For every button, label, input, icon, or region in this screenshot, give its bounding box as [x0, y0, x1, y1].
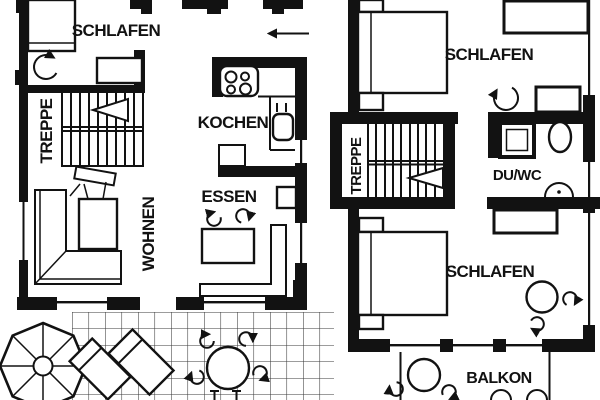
toilet-icon [549, 122, 571, 152]
room-label-schlafen-bottom: SCHLAFEN [446, 262, 535, 281]
door-swing-arrow-icon [492, 87, 520, 113]
chair-arrow-icon [388, 381, 406, 399]
bedside-table [359, 0, 383, 12]
room-label-treppe-gf: TREPPE [37, 98, 56, 163]
tv-board [74, 167, 115, 186]
stove-icon [220, 66, 258, 96]
chair-arrow-icon [531, 316, 546, 332]
room-label-balkon: BALKON [466, 370, 531, 387]
wardrobe [504, 1, 588, 33]
bedside-table [359, 315, 383, 329]
room-label-treppe-og: TREPPE [348, 137, 365, 195]
kitchen-cabinet [219, 145, 245, 166]
clipped-chairs [491, 390, 547, 400]
coffee-table [79, 199, 117, 249]
wardrobe [97, 58, 142, 83]
chair-arrow-icon [205, 211, 223, 228]
room-label-schlafen-gf: SCHLAFEN [72, 21, 161, 40]
chair-arrow-icon [441, 383, 458, 399]
room-label-du-wc: DU/WC [493, 167, 542, 184]
bathroom-du-wc [500, 122, 573, 197]
window [390, 344, 440, 346]
shower-icon [500, 123, 534, 157]
washbasin-icon [545, 183, 573, 197]
window [506, 344, 542, 346]
chair-arrow-icon [562, 291, 578, 306]
door-swing-arrow-icon [31, 53, 57, 81]
room-label-schlafen-top: SCHLAFEN [445, 45, 534, 64]
chair-arrow-icon [234, 207, 252, 224]
bedside-table [359, 218, 383, 232]
tv-stand-legs [70, 182, 106, 199]
window [453, 344, 493, 346]
window [588, 162, 590, 198]
sink-taps [277, 103, 286, 112]
room-label-essen: ESSEN [201, 187, 256, 206]
bedroom-gf [28, 0, 142, 83]
window [300, 223, 302, 263]
dining-table [202, 229, 254, 263]
ground-floor-staircase [62, 93, 143, 167]
bedside-table [359, 93, 383, 110]
wardrobe [494, 210, 557, 233]
floor-plan-page: SCHLAFEN TREPPE KOCHEN ESSEN WOHNEN [0, 0, 600, 400]
room-label-kochen: KOCHEN [198, 113, 269, 132]
window [300, 140, 302, 163]
room-label-wohnen: WOHNEN [139, 197, 158, 272]
living-area [35, 167, 121, 284]
window [204, 301, 265, 303]
round-table [527, 282, 558, 313]
floor-plan-drawing: SCHLAFEN TREPPE KOCHEN ESSEN WOHNEN [0, 0, 600, 400]
window [23, 202, 25, 260]
window [588, 213, 590, 325]
round-table [408, 359, 440, 391]
upper-floor-staircase [368, 124, 443, 197]
cabinet [277, 187, 296, 208]
sink-icon [273, 114, 293, 140]
window [57, 301, 107, 303]
shelf [536, 87, 580, 112]
